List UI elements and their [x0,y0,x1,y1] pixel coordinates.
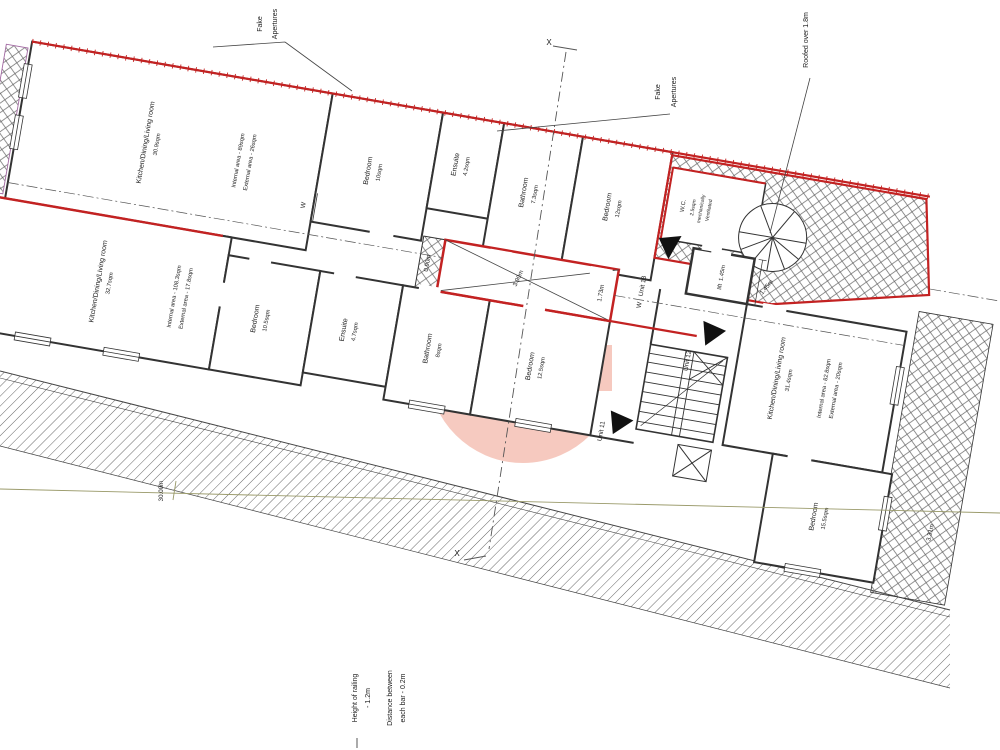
stair-void-box [673,444,712,481]
svg-text:each bar - 0.2m: each bar - 0.2m [400,673,407,722]
dim-3000: 30.00m [158,481,165,502]
section-x-top: X [546,38,552,47]
svg-text:Apertures: Apertures [671,76,678,107]
unit12-arrow [699,321,727,349]
svg-text:Fake: Fake [655,84,662,100]
svg-text:- 1.2m: - 1.2m [365,688,372,708]
svg-text:Fake: Fake [257,16,264,32]
svg-text:Height of railing: Height of railing [352,674,359,723]
floorplan-page: Kitchen/Dining/Living room 30.9sqm Inter… [0,0,1000,750]
main-stair [636,344,727,442]
unit13-label: WUnit 13 [636,275,649,309]
railing-note: Height of railing - 1.2m Distance betwee… [352,670,407,748]
fake-apertures-note-mid: Fake Apertures [497,76,678,131]
svg-text:Apertures: Apertures [272,8,279,39]
svg-text:Roofed over 1.8m: Roofed over 1.8m [803,12,810,68]
floorplan-drawing: Kitchen/Dining/Living room 30.9sqm Inter… [0,0,1000,750]
section-x-bottom: X [454,549,460,558]
svg-text:Distance between: Distance between [387,670,394,726]
unit11-arrow [607,410,635,437]
